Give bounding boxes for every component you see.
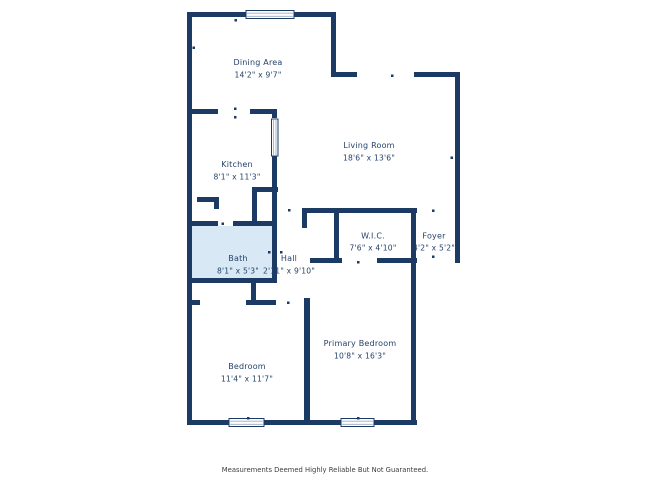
room-dims-bedroom: 11'4" x 11'7" — [221, 375, 273, 384]
window-bedroom-bottom — [229, 419, 264, 427]
floor-plan-page: Dining Area 14'2" x 9'7" Living Room 18'… — [0, 0, 650, 488]
room-dims-living-room: 18'6" x 13'6" — [343, 154, 395, 163]
room-dims-kitchen: 8'1" x 11'3" — [213, 173, 260, 182]
room-dims-dining-area: 14'2" x 9'7" — [234, 71, 281, 80]
room-name-living-room: Living Room — [343, 141, 394, 150]
window-kitchen-right — [272, 119, 279, 156]
room-dims-primary-bedroom: 10'8" x 16'3" — [334, 352, 386, 361]
room-name-primary-bedroom: Primary Bedroom — [324, 339, 397, 348]
window-dining-top — [246, 11, 294, 19]
floor-plan: Dining Area 14'2" x 9'7" Living Room 18'… — [0, 0, 650, 488]
room-dims-hall: 2'11" x 9'10" — [263, 267, 315, 276]
room-name-bath: Bath — [228, 254, 247, 263]
room-dims-wic: 7'6" x 4'10" — [349, 244, 396, 253]
room-name-hall: Hall — [281, 254, 297, 263]
room-dims-bath: 8'1" x 5'3" — [217, 267, 259, 276]
room-dims-foyer: 4'2" x 5'2" — [413, 244, 455, 253]
room-name-kitchen: Kitchen — [221, 160, 252, 169]
room-name-bedroom: Bedroom — [228, 362, 266, 371]
room-name-foyer: Foyer — [422, 232, 446, 241]
room-name-dining-area: Dining Area — [234, 58, 283, 67]
room-name-wic: W.I.C. — [361, 232, 385, 241]
window-primary-bedroom-bottom — [341, 419, 374, 427]
disclaimer-text: Measurements Deemed Highly Reliable But … — [222, 466, 428, 474]
